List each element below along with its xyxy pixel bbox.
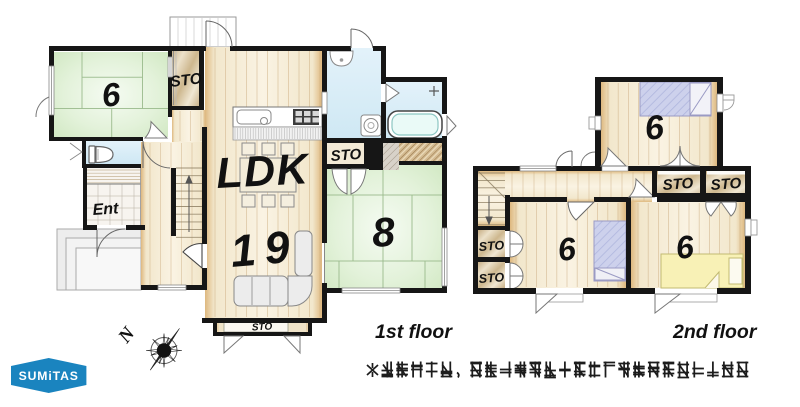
svg-text:STO: STO bbox=[252, 321, 273, 333]
svg-text:STO: STO bbox=[478, 238, 505, 254]
svg-text:LDK: LDK bbox=[215, 145, 312, 198]
svg-text:SUMiTAS: SUMiTAS bbox=[19, 369, 79, 383]
svg-text:Ent: Ent bbox=[92, 200, 120, 219]
svg-text:1st floor: 1st floor bbox=[375, 321, 453, 343]
svg-text:STO: STO bbox=[330, 146, 362, 165]
svg-text:2nd floor: 2nd floor bbox=[672, 321, 758, 343]
svg-text:19: 19 bbox=[228, 220, 300, 277]
svg-text:8: 8 bbox=[370, 208, 396, 255]
svg-text:STO: STO bbox=[478, 270, 505, 286]
svg-text:STO: STO bbox=[662, 175, 694, 194]
svg-text:STO: STO bbox=[710, 175, 742, 194]
